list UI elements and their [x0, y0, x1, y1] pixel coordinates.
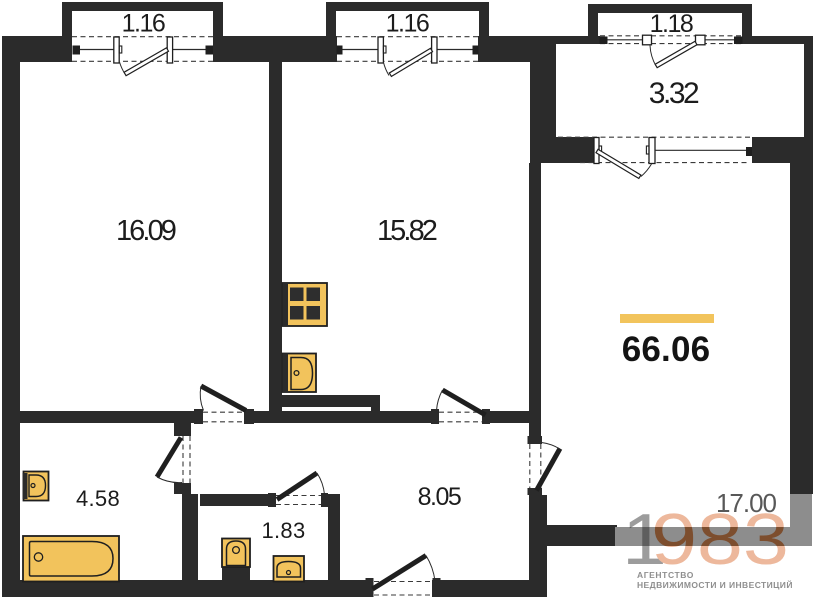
svg-text:НЕДВИЖИМОСТИ И ИНВЕСТИЦИЙ: НЕДВИЖИМОСТИ И ИНВЕСТИЦИЙ: [637, 579, 793, 590]
svg-text:1.83: 1.83: [261, 518, 305, 543]
svg-text:АГЕНТСТВО: АГЕНТСТВО: [637, 570, 694, 580]
svg-text:1.18: 1.18: [650, 10, 693, 38]
svg-text:4.58: 4.58: [76, 486, 120, 511]
svg-text:1.16: 1.16: [122, 10, 165, 38]
svg-text:8.05: 8.05: [418, 483, 461, 511]
svg-text:66.06: 66.06: [622, 330, 711, 369]
svg-text:3.32: 3.32: [649, 77, 699, 110]
svg-text:16.09: 16.09: [116, 215, 176, 247]
svg-text:15.82: 15.82: [377, 215, 437, 247]
svg-text:1.16: 1.16: [386, 10, 429, 38]
